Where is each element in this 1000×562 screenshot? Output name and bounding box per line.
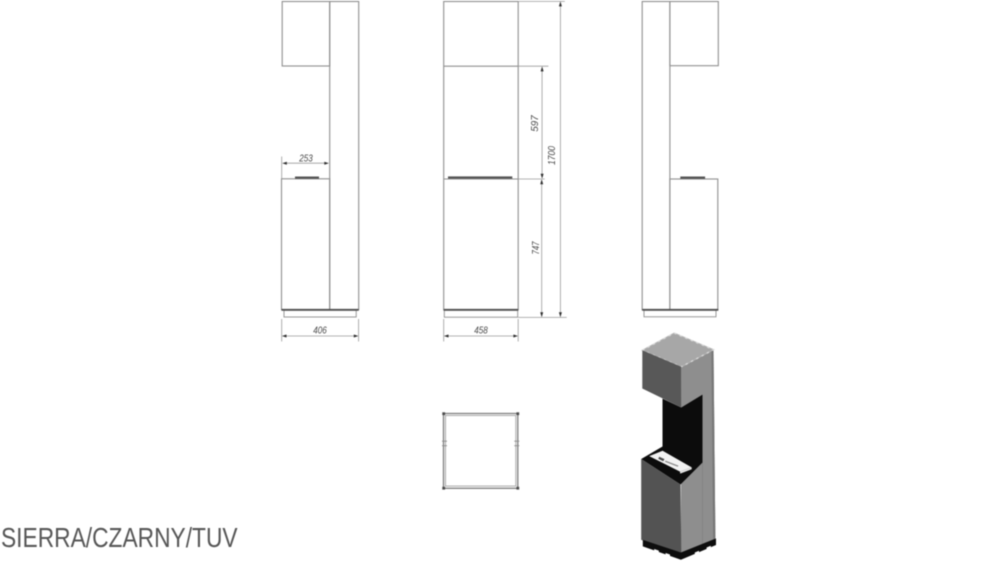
svg-text:253: 253 [298,152,312,164]
svg-text:406: 406 [313,324,327,336]
svg-text:597: 597 [530,115,541,132]
svg-text:458: 458 [474,324,488,336]
svg-text:747: 747 [531,241,542,254]
svg-text:1700: 1700 [547,146,558,165]
